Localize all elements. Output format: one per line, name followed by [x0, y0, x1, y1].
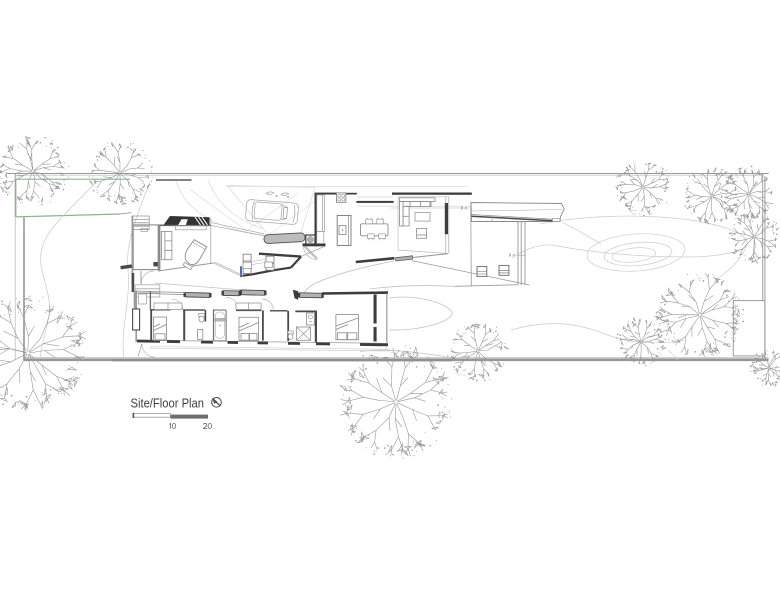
- svg-text:Site/Floor Plan: Site/Floor Plan: [131, 396, 205, 411]
